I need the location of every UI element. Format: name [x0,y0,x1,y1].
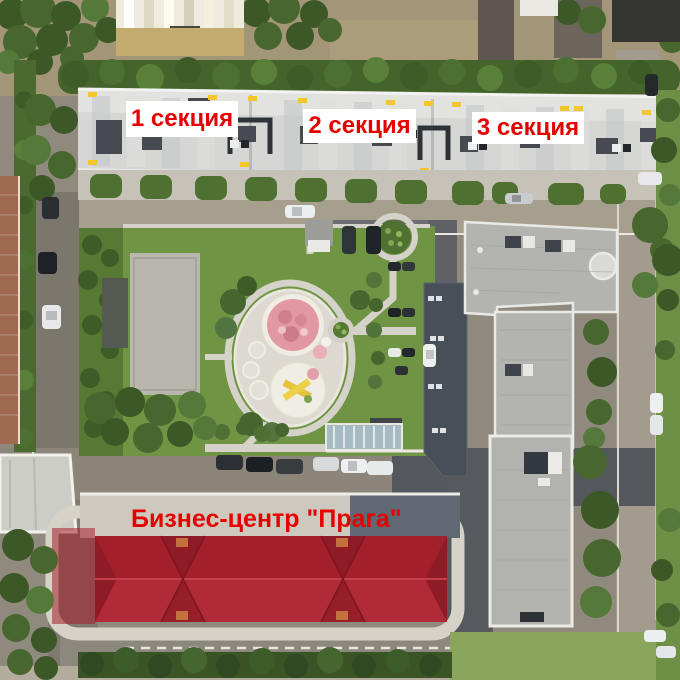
label-section-3: 3 секция [472,112,584,144]
slate-building [424,283,467,476]
rotunda [590,253,616,279]
red-roof-overlay [52,528,95,624]
courtyard [78,216,460,456]
sports-court [130,253,200,395]
label-section-1: 1 секция [126,101,238,137]
small-court [102,278,128,348]
aerial-site-render [0,0,680,680]
label-business-center: Бизнес-центр "Прага" [131,504,402,534]
red-roof [52,528,447,624]
pink-play-circle [267,299,319,351]
masterplan-screenshot: 1 секция 2 секция 3 секция Бизнес-центр … [0,0,680,680]
label-section-2: 2 секция [303,109,416,143]
south-east-building [490,436,572,626]
hedge-strips-south [78,170,680,205]
